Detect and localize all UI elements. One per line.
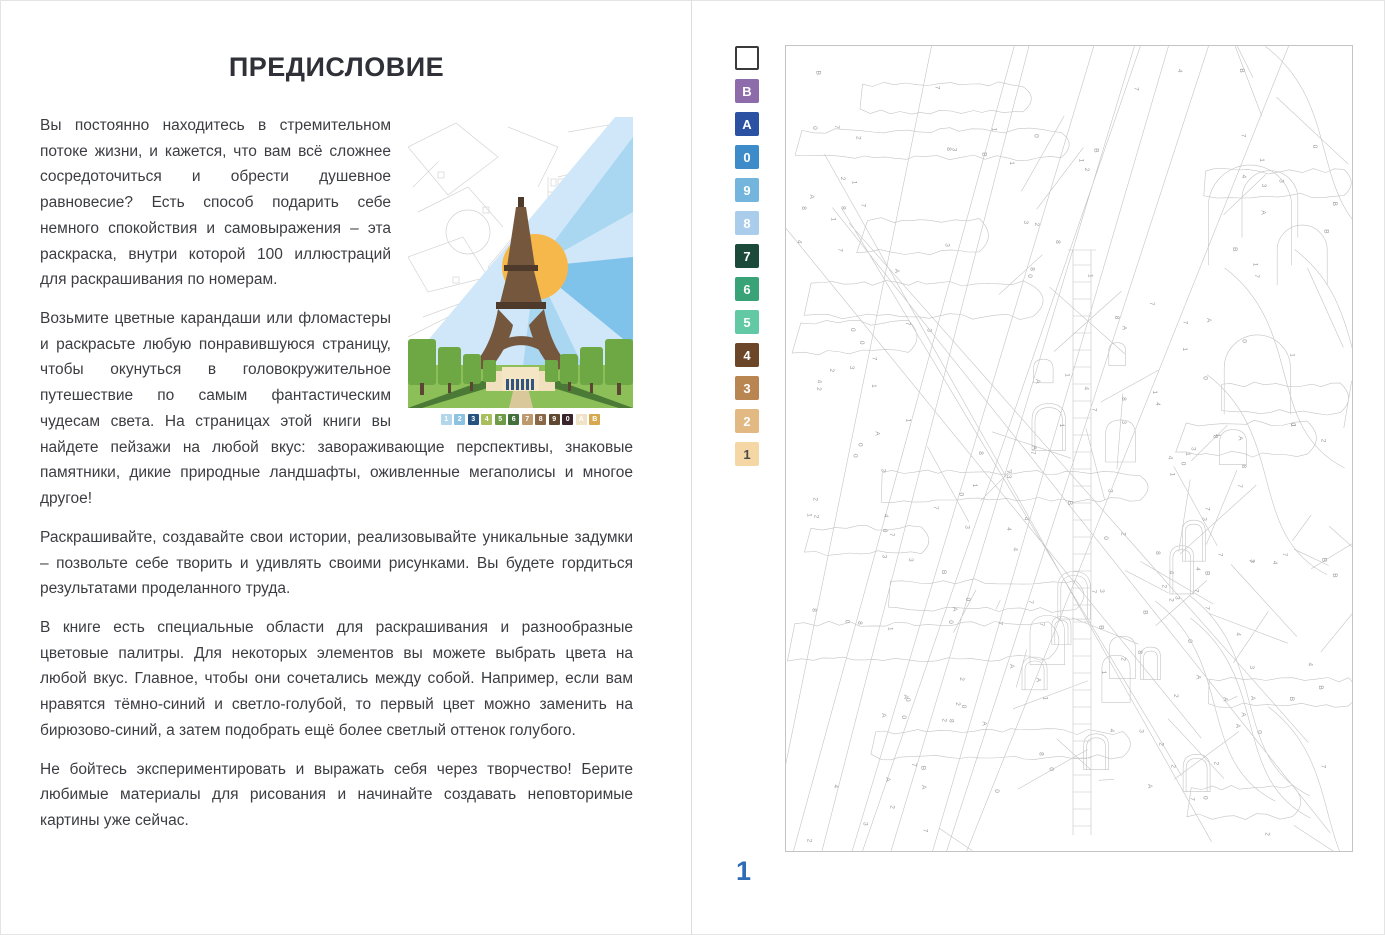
svg-text:В: В (1203, 571, 1210, 575)
svg-text:7: 7 (1182, 321, 1189, 325)
right-page: ВА0987654321 А3420А43А271273АВ8018417В31… (692, 0, 1385, 935)
svg-text:8: 8 (1240, 465, 1247, 469)
svg-text:0: 0 (1201, 376, 1208, 380)
svg-text:1: 1 (806, 513, 813, 517)
sample-artwork: 1234567890АВ (408, 117, 633, 425)
svg-text:0: 0 (858, 341, 865, 345)
svg-text:А: А (808, 195, 815, 200)
svg-text:А: А (1034, 678, 1041, 683)
svg-text:2: 2 (1033, 223, 1040, 227)
svg-text:В: В (814, 71, 821, 75)
svg-text:2: 2 (1083, 168, 1090, 172)
svg-text:0: 0 (1180, 462, 1187, 466)
mini-palette-chip-А: А (576, 414, 587, 425)
svg-text:1: 1 (1008, 161, 1015, 165)
svg-text:4: 4 (1235, 632, 1242, 636)
mini-palette-chip-7: 7 (522, 414, 533, 425)
svg-text:7: 7 (1005, 470, 1012, 474)
svg-text:3: 3 (848, 366, 855, 370)
palette-chip-1: 1 (735, 442, 759, 466)
svg-text:8: 8 (811, 608, 818, 612)
svg-text:А: А (884, 777, 891, 782)
svg-text:7: 7 (837, 248, 844, 252)
svg-text:0: 0 (1033, 134, 1040, 138)
svg-text:0: 0 (957, 493, 964, 497)
svg-text:7: 7 (1236, 484, 1243, 488)
illustration-lines (785, 45, 1353, 852)
palette-chip-9: 9 (735, 178, 759, 202)
svg-text:А: А (981, 721, 988, 726)
svg-text:2: 2 (813, 515, 820, 519)
svg-text:2: 2 (1263, 832, 1270, 836)
svg-text:3: 3 (944, 243, 951, 247)
svg-text:7: 7 (1204, 507, 1211, 511)
svg-text:1: 1 (1258, 158, 1265, 162)
page-title: ПРЕДИСЛОВИЕ (40, 52, 633, 83)
svg-text:В: В (1141, 610, 1148, 614)
paragraph: В книге есть специальные области для рас… (40, 615, 633, 744)
svg-text:2: 2 (958, 677, 965, 681)
mini-palette-chip-9: 9 (549, 414, 560, 425)
svg-text:4: 4 (1023, 517, 1030, 521)
palette-chip-8: 8 (735, 211, 759, 235)
svg-text:7: 7 (833, 125, 840, 129)
paragraph: Не бойтесь экспериментировать и выражать… (40, 757, 633, 834)
svg-text:3: 3 (1005, 475, 1012, 479)
svg-text:8: 8 (1113, 316, 1120, 320)
svg-text:4: 4 (1240, 175, 1247, 179)
svg-text:8: 8 (977, 451, 984, 455)
svg-text:В: В (1331, 202, 1338, 206)
svg-text:А: А (1249, 696, 1256, 701)
svg-text:7: 7 (1091, 408, 1098, 412)
svg-text:7: 7 (1090, 590, 1097, 594)
svg-text:4: 4 (1005, 527, 1012, 531)
svg-text:7: 7 (932, 506, 939, 510)
svg-text:4: 4 (815, 380, 822, 384)
svg-text:А: А (1221, 697, 1228, 702)
palette-chip-6: 6 (735, 277, 759, 301)
svg-text:В: В (1238, 68, 1245, 72)
svg-text:0: 0 (1186, 639, 1193, 643)
svg-text:0: 0 (1256, 730, 1263, 734)
svg-text:0: 0 (844, 620, 851, 624)
svg-text:А: А (1031, 446, 1038, 451)
svg-text:7: 7 (996, 622, 1003, 626)
page-divider (691, 0, 692, 935)
svg-text:0: 0 (993, 789, 1000, 793)
svg-text:2: 2 (889, 805, 896, 809)
svg-text:1: 1 (870, 384, 877, 388)
svg-text:А: А (1237, 436, 1244, 441)
palette-chip-А: А (735, 112, 759, 136)
svg-text:1: 1 (1078, 159, 1085, 163)
svg-text:1: 1 (1214, 433, 1221, 437)
svg-text:7: 7 (1281, 553, 1288, 557)
svg-text:2: 2 (941, 718, 948, 722)
svg-text:1: 1 (1289, 353, 1296, 357)
svg-text:В: В (1323, 229, 1330, 233)
svg-text:4: 4 (1108, 729, 1115, 733)
svg-text:А: А (1234, 724, 1241, 729)
svg-text:3: 3 (1248, 666, 1255, 670)
svg-text:1: 1 (887, 627, 894, 631)
svg-text:А: А (1008, 664, 1015, 669)
svg-text:4: 4 (1154, 402, 1161, 406)
svg-text:В: В (1317, 685, 1324, 689)
book-spread: ПРЕДИСЛОВИЕ (0, 0, 1385, 935)
palette-chip-3: 3 (735, 376, 759, 400)
svg-text:0: 0 (947, 620, 954, 624)
svg-text:А: А (951, 607, 958, 612)
svg-text:1: 1 (1168, 473, 1175, 477)
mini-palette: 1234567890АВ (408, 414, 633, 425)
svg-text:А: А (1205, 318, 1212, 323)
page-number: 1 (736, 856, 751, 887)
svg-text:0: 0 (964, 598, 971, 602)
svg-text:4: 4 (1271, 561, 1278, 565)
svg-text:2: 2 (954, 702, 961, 706)
palette-chip-blank (735, 46, 759, 70)
svg-text:1: 1 (1100, 671, 1107, 675)
palette-chip-5: 5 (735, 310, 759, 334)
svg-text:7: 7 (922, 829, 929, 833)
svg-text:4: 4 (882, 514, 889, 518)
svg-text:2: 2 (1168, 598, 1175, 602)
svg-text:2: 2 (812, 497, 819, 501)
svg-text:0: 0 (881, 529, 888, 533)
svg-text:А: А (920, 785, 927, 790)
svg-text:0: 0 (811, 126, 818, 130)
svg-text:7: 7 (888, 533, 895, 537)
svg-text:3: 3 (950, 148, 957, 152)
mini-palette-chip-3: 3 (468, 414, 479, 425)
svg-text:1: 1 (851, 181, 858, 185)
svg-text:7: 7 (1189, 797, 1196, 801)
svg-text:7: 7 (1320, 765, 1327, 769)
mini-palette-chip-8: 8 (535, 414, 546, 425)
svg-text:8: 8 (1037, 752, 1044, 756)
svg-text:А: А (1195, 675, 1202, 680)
svg-text:2: 2 (805, 839, 812, 843)
mini-palette-chip-6: 6 (508, 414, 519, 425)
palette-chip-0: 0 (735, 145, 759, 169)
paragraph: Раскрашивайте, создавайте свои истории, … (40, 525, 633, 602)
palette-chip-В: В (735, 79, 759, 103)
mini-palette-chip-2: 2 (454, 414, 465, 425)
svg-text:В: В (920, 766, 927, 770)
svg-text:3: 3 (907, 558, 914, 562)
svg-text:7: 7 (904, 322, 911, 326)
svg-text:А: А (1146, 784, 1153, 789)
svg-text:3: 3 (1200, 517, 1207, 521)
svg-text:2: 2 (1213, 762, 1220, 766)
svg-text:4: 4 (1176, 69, 1183, 73)
svg-text:В: В (1231, 247, 1238, 251)
coloring-illustration: А3420А43А271273АВ8018417В3103387727372В7… (785, 45, 1353, 852)
svg-text:4: 4 (1082, 387, 1089, 391)
svg-text:2: 2 (828, 369, 835, 373)
svg-text:3: 3 (1106, 489, 1113, 493)
svg-text:1: 1 (1058, 424, 1065, 428)
svg-text:В: В (1321, 558, 1328, 562)
svg-text:4: 4 (1194, 567, 1201, 571)
svg-text:1: 1 (830, 217, 837, 221)
svg-text:8: 8 (800, 206, 807, 210)
palette-chip-7: 7 (735, 244, 759, 268)
svg-text:В: В (1331, 573, 1338, 577)
svg-text:3: 3 (879, 469, 886, 473)
svg-text:1: 1 (1042, 696, 1049, 700)
svg-text:4: 4 (1167, 456, 1174, 460)
svg-text:1: 1 (1151, 390, 1158, 394)
svg-text:3: 3 (880, 555, 887, 559)
svg-text:0: 0 (857, 443, 864, 447)
mini-palette-chip-5: 5 (495, 414, 506, 425)
preface-text: 1234567890АВ Вы постоянно находитесь в с… (40, 113, 633, 834)
svg-text:3: 3 (925, 328, 932, 332)
palette-chip-4: 4 (735, 343, 759, 367)
mini-palette-chip-В: В (589, 414, 600, 425)
mini-palette-chip-0: 0 (562, 414, 573, 425)
svg-text:0: 0 (900, 715, 907, 719)
svg-text:1: 1 (1184, 452, 1191, 456)
svg-text:В: В (940, 570, 947, 574)
svg-text:7: 7 (933, 86, 940, 90)
palette-legend: ВА0987654321 (735, 46, 759, 466)
svg-text:В: В (1093, 148, 1100, 152)
svg-text:0: 0 (1026, 274, 1033, 278)
svg-text:2: 2 (1319, 439, 1326, 443)
svg-text:2: 2 (1170, 764, 1177, 768)
svg-text:7: 7 (1240, 134, 1247, 138)
svg-text:2: 2 (1172, 694, 1179, 698)
svg-text:8: 8 (1154, 551, 1161, 555)
svg-text:1: 1 (1086, 274, 1093, 278)
svg-text:7: 7 (1038, 623, 1045, 627)
svg-text:А: А (1121, 326, 1128, 331)
svg-text:0: 0 (1047, 767, 1054, 771)
svg-text:3: 3 (862, 822, 869, 826)
palette-chip-2: 2 (735, 409, 759, 433)
svg-text:7: 7 (1029, 451, 1036, 455)
svg-text:А: А (1259, 210, 1266, 215)
svg-text:А: А (1240, 712, 1247, 717)
svg-text:7: 7 (1216, 553, 1223, 557)
svg-text:А: А (1034, 379, 1041, 384)
svg-text:4: 4 (1167, 571, 1174, 575)
mini-palette-chip-1: 1 (441, 414, 452, 425)
svg-text:1: 1 (905, 419, 912, 423)
svg-text:0: 0 (849, 328, 856, 332)
svg-text:3: 3 (1120, 420, 1127, 424)
svg-text:1: 1 (1181, 347, 1188, 351)
svg-text:3: 3 (1138, 729, 1145, 733)
svg-text:0: 0 (1311, 145, 1318, 149)
svg-text:4: 4 (832, 785, 839, 789)
svg-text:1: 1 (1064, 373, 1071, 377)
svg-text:8: 8 (1054, 240, 1061, 244)
svg-text:3: 3 (1278, 179, 1285, 183)
svg-text:2: 2 (1161, 585, 1168, 589)
svg-text:0: 0 (852, 454, 859, 458)
left-page: ПРЕДИСЛОВИЕ (0, 0, 691, 935)
svg-text:2: 2 (854, 136, 861, 140)
svg-text:2: 2 (815, 387, 822, 391)
svg-text:2: 2 (1120, 532, 1127, 536)
svg-text:В: В (1098, 625, 1105, 629)
svg-text:7: 7 (1203, 606, 1210, 610)
svg-text:7: 7 (1027, 600, 1034, 604)
svg-text:1: 1 (1251, 263, 1258, 267)
svg-text:1: 1 (971, 484, 978, 488)
svg-text:4: 4 (796, 240, 803, 244)
svg-text:8: 8 (1120, 397, 1127, 401)
svg-text:2: 2 (1158, 742, 1165, 746)
svg-text:В: В (1066, 501, 1073, 505)
svg-text:7: 7 (1193, 589, 1200, 593)
svg-text:7: 7 (1133, 87, 1140, 91)
svg-text:0: 0 (904, 698, 911, 702)
svg-text:7: 7 (859, 204, 866, 208)
svg-text:2: 2 (1120, 657, 1127, 661)
svg-text:8: 8 (840, 206, 847, 210)
sample-artwork-thumbnail (408, 117, 633, 408)
svg-text:3: 3 (963, 525, 970, 529)
svg-text:В: В (981, 152, 988, 156)
svg-text:2: 2 (839, 177, 846, 181)
svg-text:А: А (874, 431, 881, 436)
svg-text:3: 3 (1190, 447, 1197, 451)
svg-text:0: 0 (1202, 796, 1209, 800)
svg-text:7: 7 (1148, 302, 1155, 306)
mini-palette-chip-4: 4 (481, 414, 492, 425)
svg-text:3: 3 (1022, 221, 1029, 225)
svg-text:8: 8 (856, 621, 863, 625)
svg-text:А: А (880, 713, 887, 718)
svg-text:7: 7 (1253, 274, 1260, 278)
svg-text:В: В (1288, 697, 1295, 701)
svg-text:4: 4 (1306, 663, 1313, 667)
svg-text:8: 8 (1136, 650, 1143, 654)
svg-text:1: 1 (991, 128, 998, 132)
svg-text:0: 0 (1241, 339, 1248, 343)
svg-text:7: 7 (910, 763, 917, 767)
svg-text:А: А (893, 269, 900, 274)
svg-text:1: 1 (1290, 424, 1297, 428)
svg-text:8: 8 (1028, 267, 1035, 271)
svg-text:3: 3 (1098, 589, 1105, 593)
svg-text:4: 4 (1012, 548, 1019, 552)
svg-text:0: 0 (1102, 536, 1109, 540)
svg-text:7: 7 (1248, 559, 1255, 563)
svg-text:3: 3 (1260, 184, 1267, 188)
svg-text:7: 7 (870, 357, 877, 361)
